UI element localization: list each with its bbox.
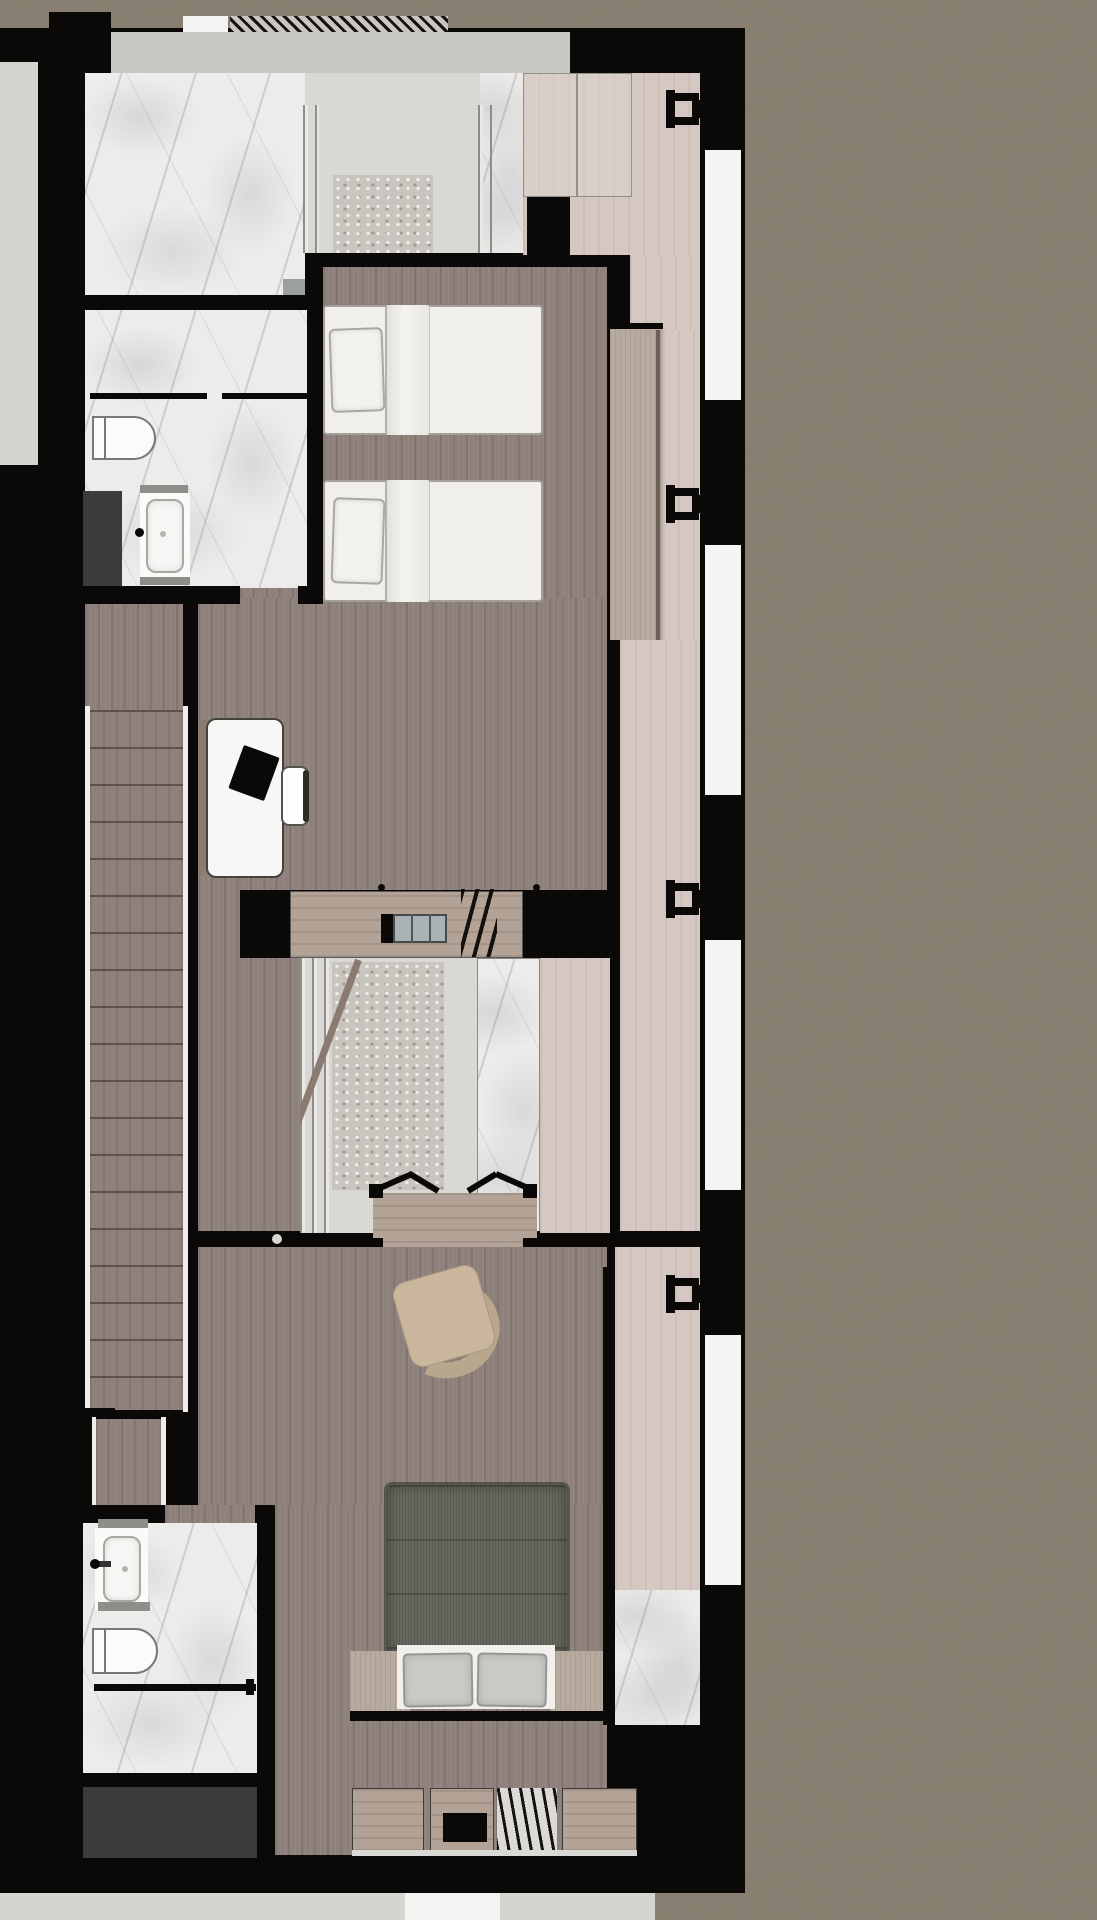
- landing-edge-right: [161, 1417, 166, 1505]
- corridor-floor-lower-right: [615, 1247, 700, 1590]
- builtin-vanity-mirror: [393, 914, 447, 943]
- desk-chair-back-edge: [303, 770, 309, 822]
- window-symbol-3-arm-bottom: [675, 907, 699, 915]
- vanity-door-pivot-dot-left: [378, 884, 385, 891]
- door-hinge-dot-a: [272, 1234, 282, 1244]
- twin-bed-1-duvet-fold: [385, 305, 430, 435]
- window-slot-3: [705, 940, 741, 1190]
- bathroom2-dark-cabinet: [83, 1787, 257, 1858]
- closet-sliding-door-track-left: [303, 105, 319, 253]
- window-symbol-2-bar: [666, 485, 675, 523]
- bathroom2-partition-jamb: [246, 1679, 254, 1695]
- landing-edge-left: [92, 1417, 96, 1505]
- bathroom2-shower-partition: [94, 1684, 256, 1691]
- bathroom1-dark-cabinet: [83, 491, 122, 590]
- bedroom2-entry-wall-left: [188, 1231, 300, 1247]
- twin-bed-1-pillow: [329, 327, 386, 413]
- dressing-runner-rug: [332, 962, 444, 1190]
- bedroom-east-wall: [603, 1267, 615, 1725]
- bathroom1-south-wall-a: [80, 586, 240, 604]
- bathroom2-door-opening: [165, 1505, 255, 1523]
- window-symbol-4-mid: [692, 1285, 700, 1303]
- vanity1-top-edge: [140, 485, 188, 493]
- twin-bed-2-pillow: [331, 497, 386, 585]
- vanity2-drain-dot: [122, 1566, 128, 1572]
- window-slot-4: [705, 1335, 741, 1585]
- entry-door-sill: [283, 279, 305, 295]
- shower-marble-bottom-right: [615, 1590, 700, 1725]
- entry-threshold-mat: [230, 16, 448, 32]
- master-pillow-left: [403, 1652, 474, 1707]
- pavement-bottom-gap: [405, 1893, 500, 1920]
- vanity2-faucet-dot: [90, 1559, 100, 1569]
- stair-top-landing: [85, 598, 183, 710]
- window-symbol-3-bar: [666, 880, 675, 918]
- window-slot-2: [705, 545, 741, 795]
- master-pillow-right: [477, 1652, 548, 1707]
- console-white-strip: [352, 1850, 637, 1856]
- corridor-wardrobe-top-edge: [610, 323, 663, 329]
- floor-plan-canvas: [0, 0, 1097, 1920]
- vanity1-drain-dot: [160, 531, 166, 537]
- window-symbol-2-arm-bottom: [675, 512, 699, 520]
- window-symbol-1-arm-bottom: [675, 117, 699, 125]
- master-bed-duvet: [387, 1485, 567, 1655]
- mirror-divider-2: [429, 914, 431, 943]
- pavement-left-strip: [0, 60, 38, 465]
- door-post-b: [523, 1184, 537, 1198]
- door-post-a: [369, 1184, 383, 1198]
- desk-top: [206, 718, 284, 878]
- bathroom2-door-jamb: [255, 1505, 275, 1523]
- bathroom1-shower-partition-b: [222, 393, 307, 399]
- window-symbol-3-mid: [692, 890, 700, 908]
- hall-floor-bridge: [198, 888, 240, 958]
- vestibule-rug: [333, 175, 433, 253]
- entry-door-leaf: [183, 16, 228, 32]
- entry-hall-marble-floor: [85, 73, 305, 295]
- toilet1-bowl: [104, 416, 156, 460]
- master-headboard-shelf-right: [550, 1651, 610, 1711]
- window-symbol-1-bar: [666, 90, 675, 128]
- outer-wall-left-top: [0, 28, 38, 62]
- stair-stringer-left: [85, 706, 90, 1412]
- stair-side-wall: [188, 598, 198, 1417]
- pavement-bottom-strip: [0, 1893, 655, 1920]
- wardrobe-box-2: [577, 73, 632, 197]
- window-symbol-4-bar: [666, 1275, 675, 1313]
- top-parapet-band: [111, 32, 570, 73]
- vanity1-bottom-edge: [140, 577, 190, 585]
- bathroom1-shower-partition-a: [90, 393, 207, 399]
- vanity2-top-edge: [98, 1519, 148, 1528]
- console-tv-box: [443, 1813, 487, 1842]
- bedroom2-entry-wall-right: [613, 1231, 700, 1247]
- toilet2-bowl: [104, 1628, 158, 1674]
- master-headboard-line: [350, 1711, 610, 1721]
- corridor-floor-long: [620, 640, 700, 1231]
- window-symbol-2-mid: [692, 495, 700, 513]
- window-symbol-4-arm-bottom: [675, 1302, 699, 1310]
- console-cabinet-left: [352, 1788, 424, 1852]
- clothes-rail-slashes: [461, 889, 497, 957]
- bathroom1-south-wall-b: [298, 586, 323, 604]
- window-slot-1: [705, 150, 741, 400]
- outer-wall-left-column: [0, 465, 38, 1895]
- bathroom2-east-wall: [257, 1523, 275, 1858]
- wall-pier-corridor: [527, 197, 570, 277]
- bathroom1-door-pivot-dot: [221, 596, 228, 603]
- corridor-wardrobe-front-line: [656, 330, 660, 640]
- entry-wall-corner-chunk: [49, 12, 111, 32]
- closet-sliding-door-track-right: [478, 105, 492, 253]
- stair-bottom-landing: [95, 1419, 162, 1505]
- mirror-divider-1: [411, 914, 413, 943]
- vanity-door-pivot-dot-right: [533, 884, 540, 891]
- window-symbol-1-mid: [692, 100, 700, 118]
- console-cabinet-right: [562, 1788, 637, 1852]
- staircase-treads: [90, 710, 183, 1410]
- dressing-pink-strip: [540, 958, 610, 1233]
- twin-bed-2-duvet-fold: [385, 480, 430, 602]
- wardrobe-box-1: [523, 73, 577, 197]
- corridor-floor-upper-mid: [630, 255, 700, 330]
- corridor-wall-line-mid: [610, 647, 620, 1231]
- vanity2-bottom-edge: [98, 1602, 150, 1611]
- vanity1-faucet-dot: [135, 528, 144, 537]
- lower-hall-floor: [198, 958, 300, 1233]
- console-louver-hatch: [497, 1788, 557, 1854]
- builtin-vanity-black-slot: [381, 914, 393, 943]
